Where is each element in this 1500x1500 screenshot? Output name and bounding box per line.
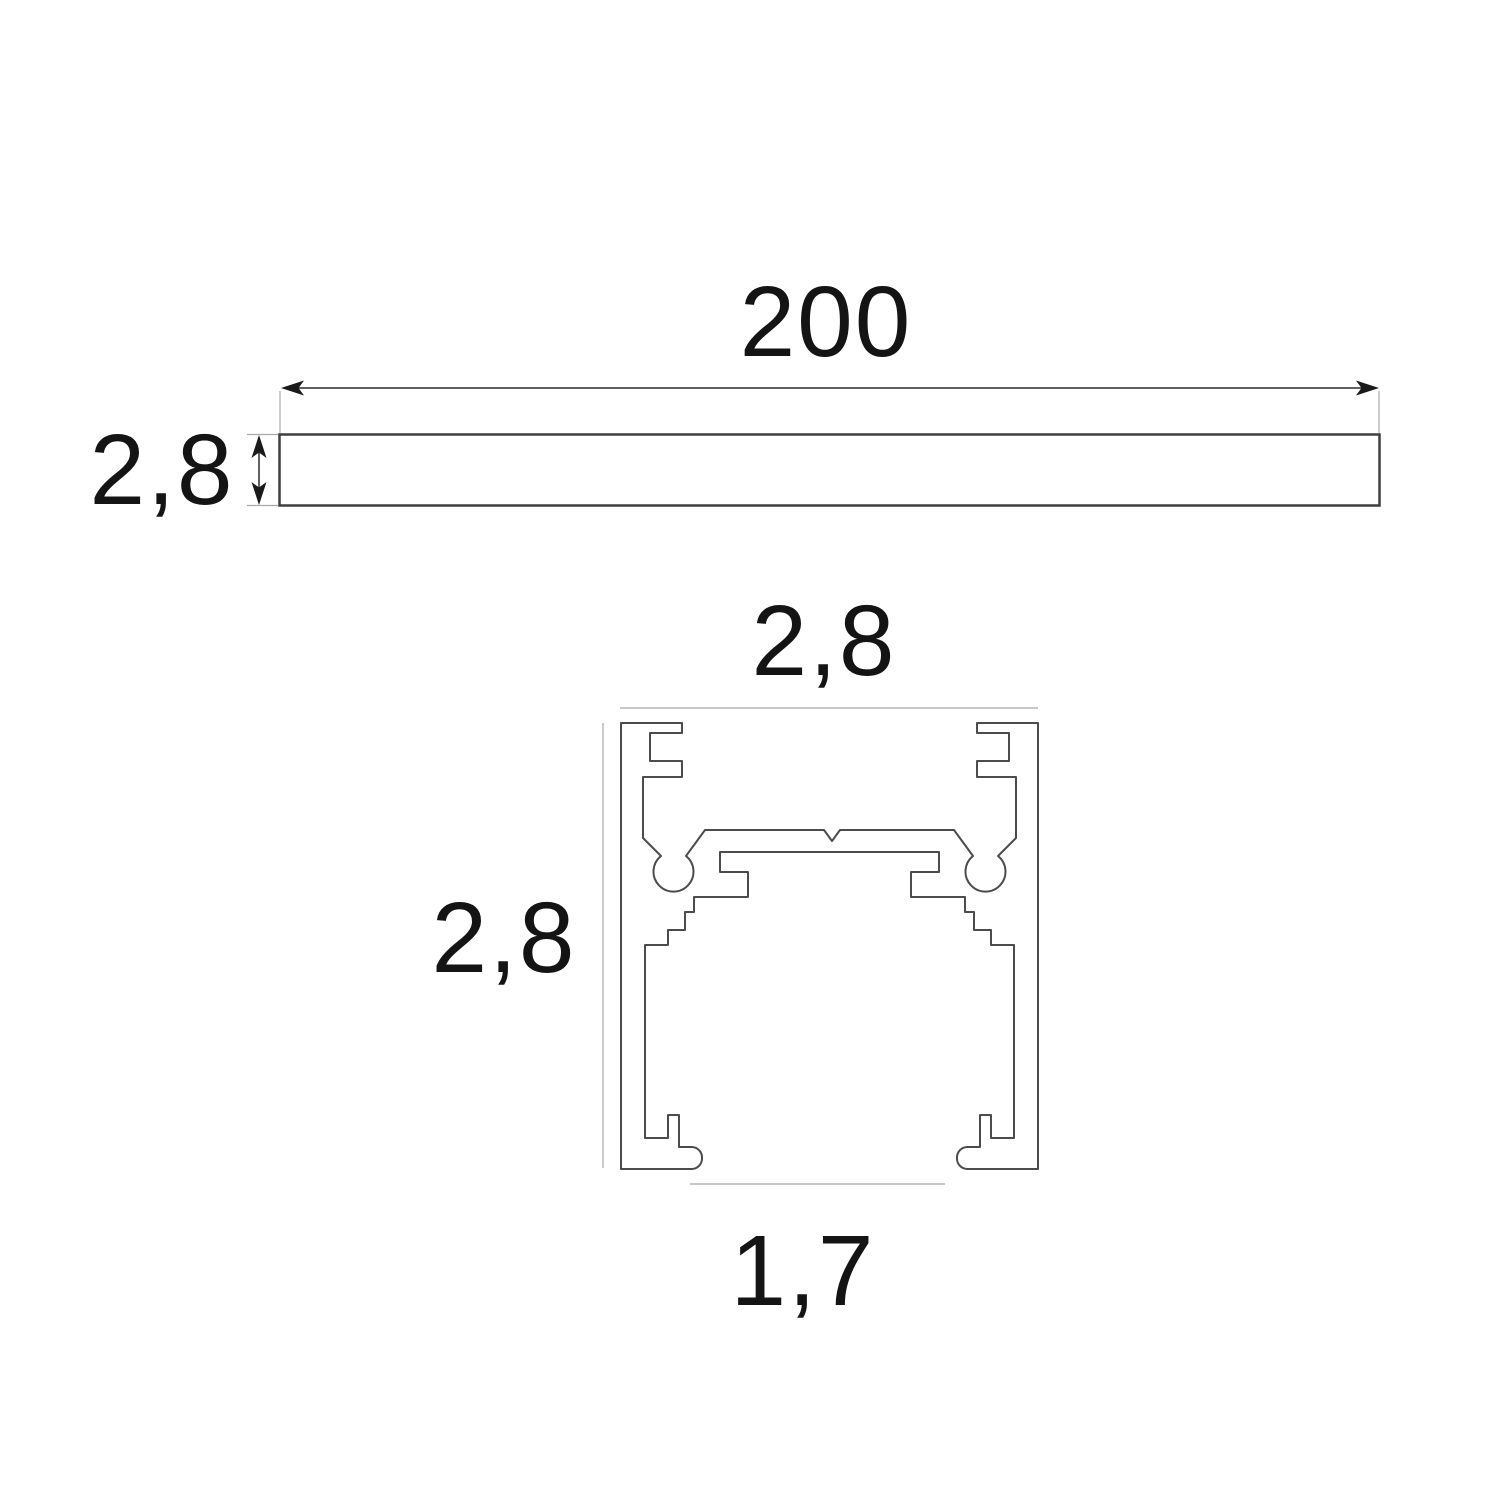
section-view-group xyxy=(603,708,1038,1184)
section-height-label: 2,8 xyxy=(431,888,576,988)
top-view-group xyxy=(247,381,1380,506)
top-view-length-label: 200 xyxy=(740,272,913,372)
track-bar-outline xyxy=(280,435,1380,506)
dimension-drawing-canvas: 200 2,8 2,8 2,8 1,7 xyxy=(0,0,1500,1500)
section-bottom-width-label: 1,7 xyxy=(730,1221,875,1321)
top-view-height-label: 2,8 xyxy=(89,420,234,520)
section-width-label: 2,8 xyxy=(751,591,896,691)
profile-cross-section-outline xyxy=(621,723,1038,1169)
